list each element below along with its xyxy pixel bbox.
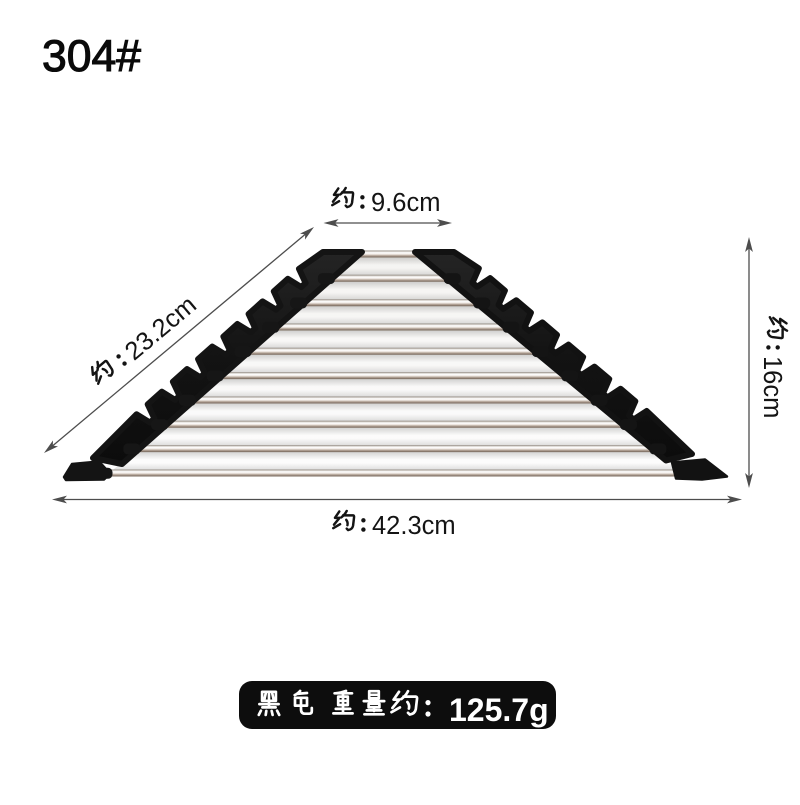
svg-text:16cm: 16cm bbox=[758, 356, 786, 418]
svg-text:125.7g: 125.7g bbox=[449, 692, 549, 728]
svg-text:304#: 304# bbox=[42, 32, 141, 81]
svg-text:9.6cm: 9.6cm bbox=[371, 189, 440, 217]
svg-text:42.3cm: 42.3cm bbox=[372, 512, 456, 540]
